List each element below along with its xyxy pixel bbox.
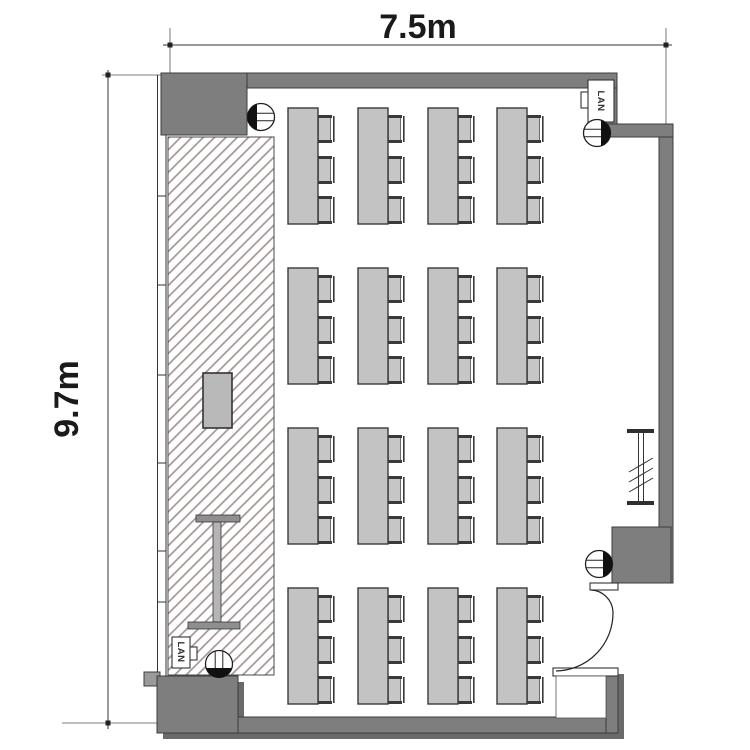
chair [527,156,544,184]
chair [527,356,544,384]
chair-backrest [473,517,475,543]
chair-armrest [388,196,402,199]
chair-armrest [458,476,472,479]
chair-backrest [542,197,544,223]
chair [388,516,405,544]
chair-seat [528,358,540,382]
table [288,428,318,544]
chair-seat [389,277,401,301]
chair-seat [319,318,331,342]
chair-seat [389,437,401,461]
chair [527,115,544,143]
chair-armrest [318,300,332,303]
chair-armrest [388,221,402,224]
chair-armrest [527,300,541,303]
chair-armrest [527,341,541,344]
chair-armrest [388,701,402,704]
screen-top-bar [196,515,240,522]
chair-seat [389,318,401,342]
table-group-r3-c2 [358,428,405,544]
podium [203,373,232,428]
chair-backrest [473,317,475,343]
chair [318,636,335,664]
chair-armrest [318,156,332,159]
chair-seat [459,318,471,342]
chair-seat [459,638,471,662]
chair-seat [319,638,331,662]
bottom-wall [238,717,618,733]
chair-armrest [388,341,402,344]
chair-armrest [318,595,332,598]
table [428,428,458,544]
chair-armrest [318,221,332,224]
table-group-r2-c4 [497,268,544,384]
floor-plan: 7.5m 9.7m LAN [0,0,750,750]
chair-armrest [388,476,402,479]
chair [318,595,335,623]
chair-seat [319,198,331,222]
height-dimension-label: 9.7m [48,360,86,438]
chair-armrest [388,541,402,544]
chair-armrest [318,196,332,199]
chair-backrest [542,317,544,343]
chair-backrest [333,276,335,302]
floor-plan-svg: 7.5m 9.7m LAN [0,0,750,750]
chair [527,676,544,704]
chair-armrest [527,676,541,679]
chair-armrest [388,181,402,184]
chair [527,435,544,463]
chair-backrest [473,357,475,383]
dimension-tick [664,43,669,48]
chair [527,595,544,623]
chair-seat [528,277,540,301]
chair [527,636,544,664]
chair-armrest [458,460,472,463]
chair-armrest [458,541,472,544]
chair-seat [319,277,331,301]
chair-backrest [542,677,544,703]
chair-seat [389,638,401,662]
chair [318,516,335,544]
chair-armrest [527,636,541,639]
chair-backrest [403,677,405,703]
chair [458,676,475,704]
chair-seat [528,678,540,702]
chair [527,516,544,544]
chair-seat [319,437,331,461]
table-group-r4-c1 [288,588,335,704]
chair-armrest [388,501,402,504]
top-left-column [161,73,247,135]
chair [388,435,405,463]
chair [388,476,405,504]
partition-bottom-cap [627,501,654,505]
chair-armrest [318,181,332,184]
table [358,268,388,384]
chair-seat [319,478,331,502]
chair-armrest [458,435,472,438]
chair-armrest [318,275,332,278]
chair-armrest [318,541,332,544]
table-group-r2-c1 [288,268,335,384]
width-dimension-label: 7.5m [379,8,457,46]
table-group-r4-c4 [497,588,544,704]
outlet-icon [584,120,611,147]
chair-backrest [403,637,405,663]
table-group-r1-c2 [358,108,405,224]
chair-armrest [388,676,402,679]
chair-armrest [318,636,332,639]
chair-seat [459,597,471,621]
chair-armrest [458,341,472,344]
chair-armrest [458,300,472,303]
chair-armrest [318,476,332,479]
chair-backrest [542,436,544,462]
chair-backrest [403,317,405,343]
chair-seat [528,638,540,662]
chair-seat [319,158,331,182]
chair-seat [319,597,331,621]
chair [458,316,475,344]
outlet-wedge [603,551,613,577]
table [288,588,318,704]
chair-armrest [527,156,541,159]
chair-armrest [388,661,402,664]
chair [318,435,335,463]
chair [388,636,405,664]
chair-armrest [527,381,541,384]
table [428,588,458,704]
chair-armrest [318,676,332,679]
table-group-r1-c4 [497,108,544,224]
chair-seat [459,198,471,222]
chair-backrest [333,157,335,183]
chair-backrest [333,317,335,343]
chair-armrest [388,516,402,519]
lan-label: LAN [595,90,606,111]
chair-armrest [527,460,541,463]
chair [318,356,335,384]
chair-armrest [527,275,541,278]
chair-armrest [388,435,402,438]
chair-armrest [388,156,402,159]
chair-seat [389,358,401,382]
bottom-right-wall-return [606,668,618,733]
chair-armrest [318,460,332,463]
chair-armrest [458,381,472,384]
chair-armrest [458,516,472,519]
door-swing-arc-large [556,612,613,671]
table-group-r2-c2 [358,268,405,384]
chair-armrest [388,356,402,359]
chair-backrest [473,436,475,462]
chair-seat [528,117,540,141]
chair-backrest [333,197,335,223]
chair-seat [459,358,471,382]
chair [388,196,405,224]
table-group-r4-c2 [358,588,405,704]
chair [458,636,475,664]
chair-seat [528,597,540,621]
chair-seat [319,117,331,141]
screen-bottom-bar [188,622,240,629]
table [428,268,458,384]
dimension-tick [168,43,173,48]
chair-armrest [527,620,541,623]
table-group-r1-c1 [288,108,335,224]
chair-armrest [458,181,472,184]
lan-label: LAN [175,641,186,662]
chair [318,316,335,344]
chair-armrest [458,115,472,118]
chair [527,275,544,303]
chair-armrest [318,381,332,384]
chair-armrest [458,620,472,623]
chair-armrest [318,316,332,319]
chair-seat [459,158,471,182]
chair [458,115,475,143]
chair [388,676,405,704]
outlet-wedge [247,104,257,130]
stage-area [168,137,274,675]
chair-armrest [527,435,541,438]
chair-seat [528,158,540,182]
chair-armrest [458,221,472,224]
chair-backrest [403,116,405,142]
chair-backrest [333,116,335,142]
chair-armrest [318,516,332,519]
chair [388,156,405,184]
chair-armrest [527,356,541,359]
table [497,588,527,704]
chair-armrest [458,196,472,199]
chair-seat [459,117,471,141]
table-group-r3-c3 [428,428,475,544]
chair-backrest [542,517,544,543]
chair-seat [319,678,331,702]
dimension-tick [106,721,111,726]
chair-armrest [458,661,472,664]
chair-backrest [333,357,335,383]
chair-backrest [403,517,405,543]
table-group-r1-c3 [428,108,475,224]
chair-backrest [473,477,475,503]
screen-stem [213,522,221,622]
chair-seat [389,518,401,542]
outlet-icon [586,551,613,578]
chair [318,196,335,224]
chair [388,316,405,344]
chair-armrest [527,661,541,664]
chair-seat [389,117,401,141]
table [358,428,388,544]
chair-backrest [542,276,544,302]
chair [458,275,475,303]
chair [458,476,475,504]
chair [458,595,475,623]
chair-armrest [527,316,541,319]
chair-armrest [527,196,541,199]
chair-backrest [333,596,335,622]
chair-armrest [527,181,541,184]
chair-backrest [403,276,405,302]
chair-seat [389,597,401,621]
outlet-icon [247,104,274,131]
chair-armrest [388,381,402,384]
partition-top-cap [627,429,654,433]
chair [318,115,335,143]
chair-armrest [458,501,472,504]
door-swing-arc-small [591,590,613,612]
right-wall [659,137,673,583]
chair-backrest [403,596,405,622]
chair-seat [389,158,401,182]
table [288,108,318,224]
chair-backrest [473,157,475,183]
chair-backrest [333,436,335,462]
chair-armrest [458,275,472,278]
tables-and-chairs [288,108,544,704]
chair-seat [528,437,540,461]
chair-seat [389,198,401,222]
chair-armrest [318,356,332,359]
chair-seat [459,518,471,542]
outlet-icon [206,651,233,678]
table [288,268,318,384]
chair-backrest [333,677,335,703]
chair-seat [319,358,331,382]
chair-seat [459,678,471,702]
chair [318,676,335,704]
chair-seat [459,437,471,461]
chair-armrest [458,701,472,704]
chair [318,156,335,184]
chair-armrest [318,620,332,623]
chair-armrest [527,701,541,704]
chair-armrest [527,541,541,544]
chair-seat [389,478,401,502]
chair [527,196,544,224]
chair-armrest [318,140,332,143]
chair [388,356,405,384]
chair-armrest [388,595,402,598]
chair-armrest [458,595,472,598]
chair-backrest [473,596,475,622]
chair-armrest [388,140,402,143]
chair-armrest [458,156,472,159]
left-wall-window-ticks [158,196,167,602]
table [497,268,527,384]
door-side-column [612,527,671,583]
door-top-ledge [590,583,618,590]
chair-armrest [527,476,541,479]
chair-seat [319,518,331,542]
chair-armrest [527,140,541,143]
chair-armrest [458,636,472,639]
chair-backrest [473,276,475,302]
door-bottom-ledge [553,668,618,676]
chair-armrest [318,341,332,344]
chair [318,476,335,504]
chair [388,115,405,143]
chair-backrest [333,637,335,663]
chair-seat [528,198,540,222]
table-group-r3-c1 [288,428,335,544]
chair-armrest [318,501,332,504]
chair [527,476,544,504]
chair-armrest [388,275,402,278]
chair-armrest [388,636,402,639]
table [428,108,458,224]
chair-backrest [473,197,475,223]
chair [388,275,405,303]
chair-backrest [403,436,405,462]
chair [458,356,475,384]
bottom-left-column [157,676,238,733]
chair-armrest [388,115,402,118]
chair [458,435,475,463]
table-group-r2-c3 [428,268,475,384]
chair [388,595,405,623]
chair-backrest [542,157,544,183]
chair-backrest [473,116,475,142]
table [497,428,527,544]
chair-armrest [527,501,541,504]
partition-symbol [627,429,654,505]
chair-armrest [458,676,472,679]
chair [458,196,475,224]
chair-armrest [318,115,332,118]
chair-backrest [473,677,475,703]
chair-armrest [458,356,472,359]
chair-backrest [333,517,335,543]
chair-armrest [318,661,332,664]
chair-seat [528,318,540,342]
table [358,108,388,224]
chair-backrest [403,197,405,223]
chair-armrest [527,516,541,519]
chair-backrest [403,157,405,183]
chair [458,156,475,184]
chair-seat [528,518,540,542]
chair-armrest [318,701,332,704]
chair-backrest [403,477,405,503]
chair-backrest [542,596,544,622]
entrance-alcove [556,676,606,718]
table-group-r4-c3 [428,588,475,704]
chair-armrest [318,435,332,438]
chair-armrest [527,221,541,224]
table [497,108,527,224]
chair-backrest [403,357,405,383]
chair-armrest [458,316,472,319]
chair-backrest [473,637,475,663]
table [358,588,388,704]
chair-armrest [458,140,472,143]
chair-seat [459,478,471,502]
chair-armrest [388,460,402,463]
chair-backrest [542,116,544,142]
chair-backrest [333,477,335,503]
chair [527,316,544,344]
chair-seat [528,478,540,502]
chair-armrest [388,300,402,303]
table-group-r3-c4 [497,428,544,544]
dimension-tick [106,73,111,78]
chair-backrest [542,477,544,503]
chair-seat [389,678,401,702]
